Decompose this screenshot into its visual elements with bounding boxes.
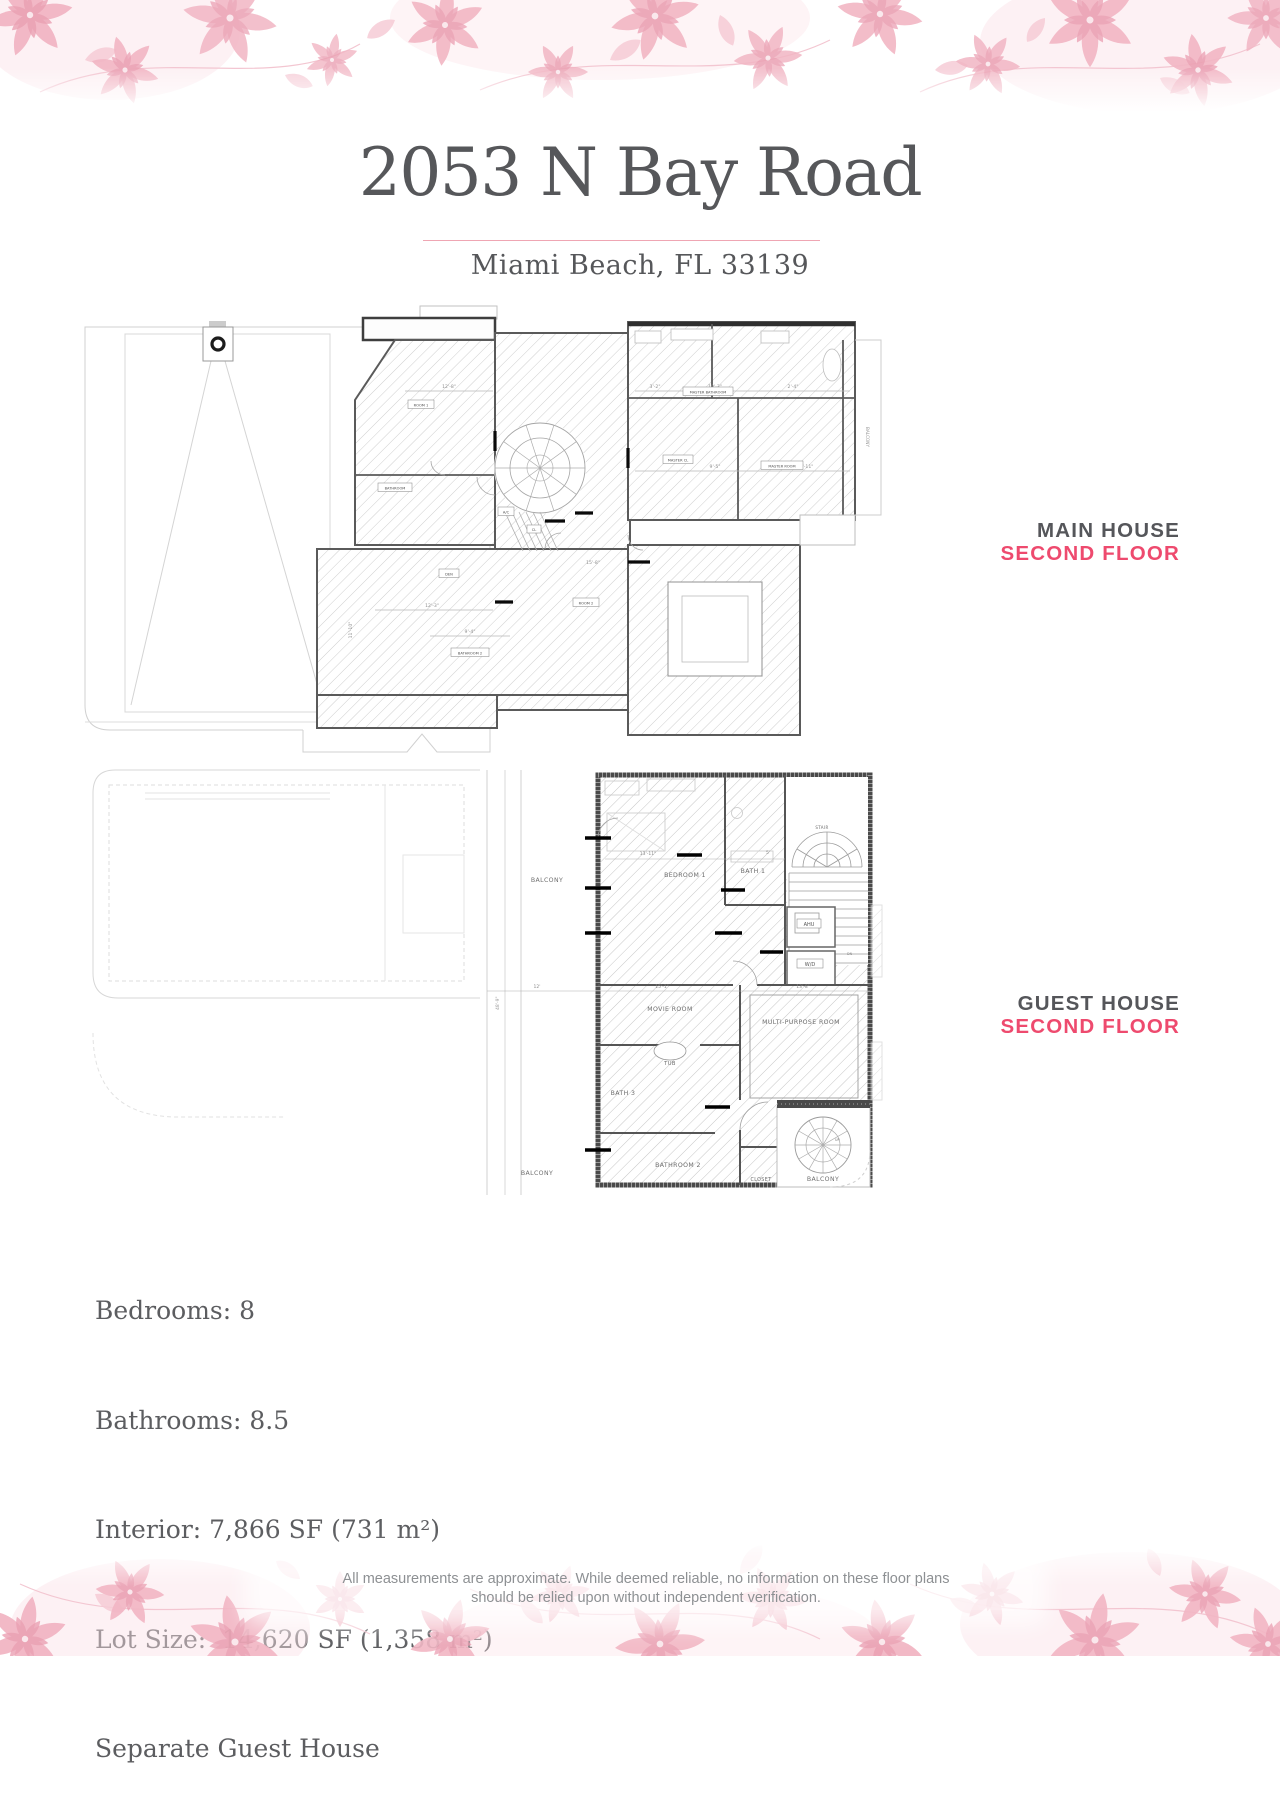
balcony-corridor: 48'-9" BALCONY BALCONY [487, 770, 563, 1195]
detail-bathrooms: Bathrooms: 8.5 [95, 1403, 493, 1440]
detail-bedrooms: Bedrooms: 8 [95, 1293, 493, 1330]
strip-bottom [317, 695, 497, 728]
wing-lower-left [317, 549, 628, 695]
room-label-bathroom2: BATHROOM 2 [458, 651, 482, 655]
fixture-circle-icon [212, 338, 224, 350]
room-label-bath3: BATH 3 [611, 1090, 636, 1097]
dim-label: 15'-8" [586, 560, 600, 566]
room-label-dn: DN [847, 952, 853, 956]
band-fade [0, 68, 1280, 112]
title-divider [423, 240, 820, 241]
room-label-master-bathroom: MASTER BATHROOM [690, 390, 727, 394]
room-label-ahu: AHU [804, 922, 815, 928]
room-label-balcony: BALCONY [865, 427, 870, 447]
room-label-balcony-bottom-right: BALCONY [807, 1176, 839, 1183]
dim-label: 9'-4" [465, 629, 476, 635]
wing-upper-right [628, 322, 855, 520]
room-label-balcony-bottom-left: BALCONY [521, 1170, 553, 1177]
dim-label: 15'-1" [655, 984, 669, 990]
room-label-multi: MULTI-PURPOSE ROOM [762, 1019, 840, 1026]
guest-house-name: GUEST HOUSE [1000, 992, 1180, 1015]
dim-label: 9'-5" [710, 464, 721, 470]
disclaimer: All measurements are approximate. While … [260, 1568, 1032, 1610]
page-subtitle: Miami Beach, FL 33139 [0, 250, 1280, 281]
room-label-wd: W/D [805, 962, 816, 968]
room-label-closet: CLOSET [750, 1177, 771, 1183]
room-label-movie: MOVIE ROOM [647, 1006, 692, 1013]
room-label-bathroom: BATHROOM [385, 486, 406, 490]
dim-label: 11'-10" [348, 622, 354, 639]
dim-label: 12' [534, 984, 541, 990]
room-label-stair: STAIR [815, 825, 828, 830]
detail-guest-house: Separate Guest House [95, 1731, 493, 1768]
page-title: 2053 N Bay Road [0, 134, 1280, 211]
room-label-ac: A/C [503, 510, 510, 514]
room-label-bathroom2: BATHROOM 2 [655, 1162, 701, 1169]
room-label-master-cl: MASTER CL [668, 458, 688, 462]
dim-label: 2'-4" [788, 384, 799, 390]
room-label-den: DEN [445, 572, 453, 576]
first-floor-ghost-outline [93, 770, 480, 1117]
skylight-void-inner [682, 596, 748, 662]
room-label-bedroom1: BEDROOM 1 [664, 872, 706, 879]
main-plan-masses [317, 306, 855, 735]
main-house-floor-plan: 12'-8" 3'-2" 10'-3" 2'-4" 9'-5" 12'-11" … [75, 305, 905, 755]
guest-house-floor-plan: 48'-9" BALCONY BALCONY AHU W/D [85, 755, 915, 1200]
guest-house-floor: SECOND FLOOR [1000, 1015, 1180, 1038]
room-label-room2: ROOM 2 [579, 601, 594, 605]
property-details: Bedrooms: 8 Bathrooms: 8.5 Interior: 7,8… [95, 1220, 493, 1804]
room-label-room1: ROOM 1 [414, 403, 429, 407]
disclaimer-line1: All measurements are approximate. While … [266, 1570, 1026, 1589]
dim-label: 48'-9" [495, 996, 501, 1010]
dim-label: 13'-8" [796, 984, 810, 990]
floral-band-top [0, 0, 1280, 112]
room-label-up: UP [835, 1138, 840, 1142]
flyer-page: { "header": { "title": "2053 N Bay Road"… [0, 0, 1280, 1656]
room-label-bath1: BATH 1 [741, 868, 766, 875]
main-house-floor: SECOND FLOOR [1000, 542, 1180, 565]
balcony-box [363, 318, 495, 340]
wing-upper-left [355, 340, 495, 545]
bottom-right-balcony: UP BALCONY [777, 1100, 870, 1187]
room-label-tub: TUB [663, 1061, 676, 1067]
main-house-name: MAIN HOUSE [1000, 519, 1180, 542]
room-label-master-room: MASTER ROOM [768, 464, 795, 468]
guest-house-section-label: GUEST HOUSE SECOND FLOOR [1000, 992, 1180, 1038]
garage-projector-fixture [203, 321, 233, 361]
dim-label: 12'-8" [442, 384, 456, 390]
floral-band-top-art [0, 0, 1280, 112]
dim-label: 3'-2" [650, 384, 661, 390]
disclaimer-line2: should be relied upon without independen… [266, 1589, 1026, 1608]
dim-label: 13'-11" [640, 851, 656, 857]
room-label-balcony-top: BALCONY [531, 877, 563, 884]
dim-label: 5' [766, 850, 770, 856]
right-balcony-strips [871, 905, 882, 1100]
room-label-cl: CL [532, 528, 537, 532]
main-house-section-label: MAIN HOUSE SECOND FLOOR [1000, 519, 1180, 565]
dim-label: 12'-3" [425, 603, 439, 609]
